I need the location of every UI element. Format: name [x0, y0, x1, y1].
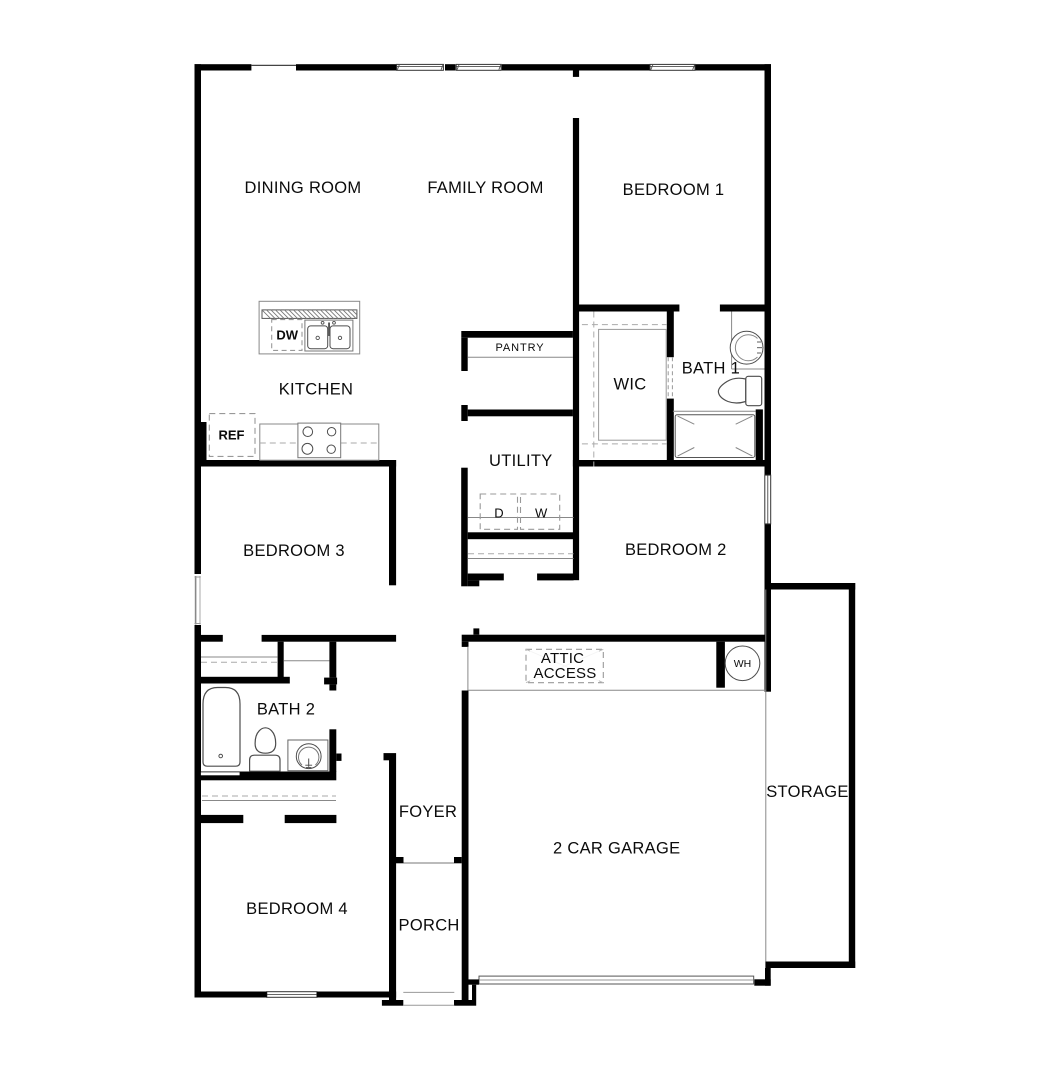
svg-text:DINING ROOM: DINING ROOM [245, 179, 362, 197]
svg-text:D: D [494, 505, 503, 520]
svg-text:PORCH: PORCH [399, 917, 460, 935]
svg-text:BATH 2: BATH 2 [257, 700, 315, 718]
svg-text:BEDROOM 4: BEDROOM 4 [246, 900, 348, 918]
svg-text:W: W [535, 505, 548, 520]
svg-text:UTILITY: UTILITY [489, 452, 553, 470]
svg-text:BEDROOM 2: BEDROOM 2 [625, 541, 727, 559]
svg-text:WH: WH [734, 658, 752, 670]
svg-text:FAMILY ROOM: FAMILY ROOM [427, 179, 543, 197]
svg-text:WIC: WIC [614, 375, 647, 393]
svg-text:STORAGE: STORAGE [766, 783, 848, 801]
svg-text:2 CAR GARAGE: 2 CAR GARAGE [553, 839, 680, 857]
svg-text:ACCESS: ACCESS [534, 665, 597, 682]
svg-text:BATH 1: BATH 1 [682, 359, 740, 377]
svg-text:DW: DW [276, 328, 298, 343]
svg-text:FOYER: FOYER [399, 803, 457, 821]
svg-text:REF: REF [219, 428, 245, 443]
svg-text:KITCHEN: KITCHEN [279, 380, 354, 398]
svg-text:BEDROOM 1: BEDROOM 1 [623, 181, 725, 199]
svg-text:BEDROOM 3: BEDROOM 3 [243, 542, 345, 560]
svg-text:PANTRY: PANTRY [495, 342, 544, 354]
